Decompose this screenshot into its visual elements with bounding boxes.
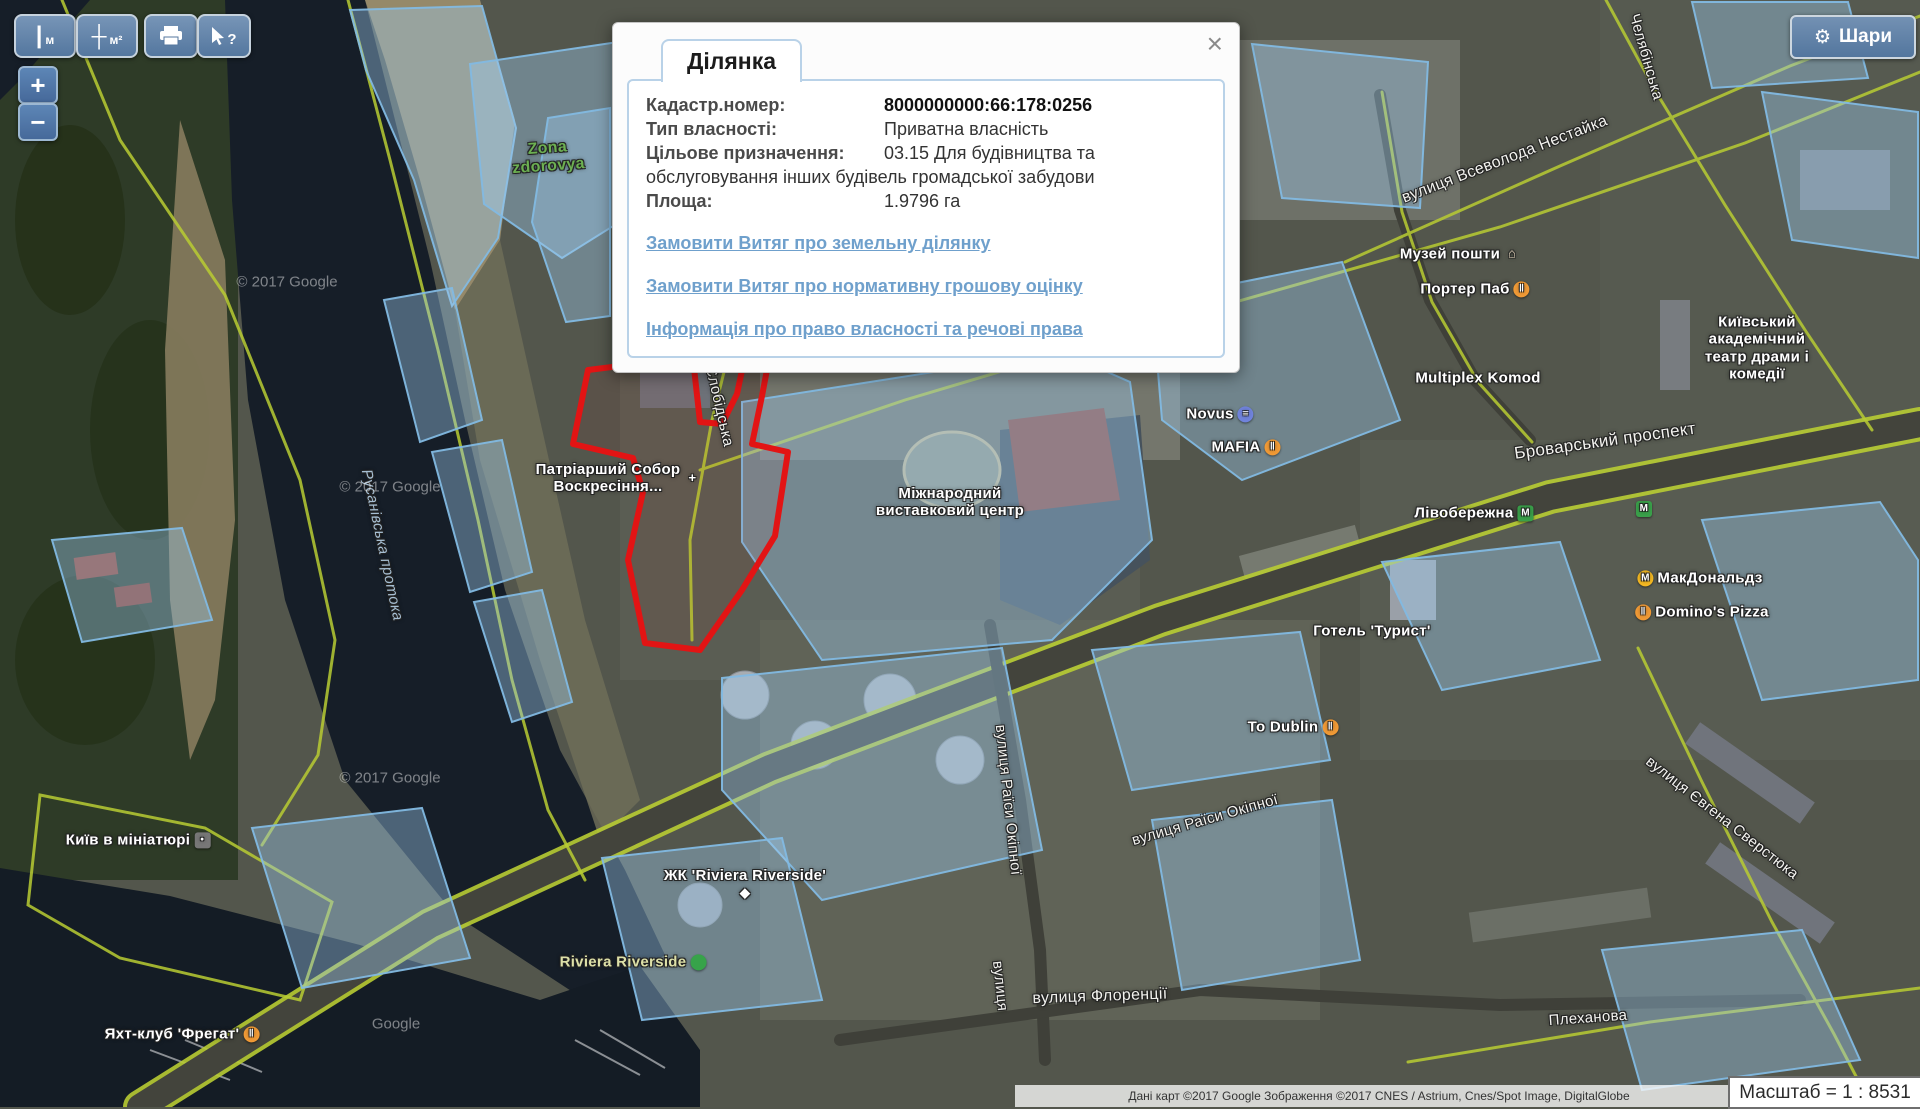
measure-length-button[interactable]: | м bbox=[14, 14, 76, 58]
zoom-out-button[interactable]: − bbox=[18, 103, 58, 141]
layers-button[interactable]: ⚙ Шари bbox=[1790, 15, 1916, 59]
identify-button[interactable]: ? bbox=[197, 14, 251, 58]
measure-area-unit: м² bbox=[110, 33, 123, 47]
link-ownership-info[interactable]: Інформація про право власності та речові… bbox=[646, 319, 1206, 340]
minus-icon: − bbox=[30, 109, 45, 135]
printer-icon bbox=[159, 26, 183, 46]
link-order-extract-parcel[interactable]: Замовити Витяг про земельну ділянку bbox=[646, 233, 1206, 254]
field-area: Площа:1.9796 га bbox=[646, 189, 1206, 213]
close-icon[interactable]: × bbox=[1207, 27, 1223, 61]
gear-icon: ⚙ bbox=[1814, 28, 1831, 47]
identify-question-mark: ? bbox=[227, 31, 236, 48]
link-order-monetary-valuation[interactable]: Замовити Витяг про нормативну грошову оц… bbox=[646, 276, 1206, 297]
field-cadastral-number: Кадастр.номер:8000000000:66:178:0256 bbox=[646, 93, 1206, 117]
field-value: 1.9796 га bbox=[884, 191, 960, 211]
measure-area-button[interactable]: ┼ м² bbox=[76, 14, 138, 58]
popup-tab-row: Ділянка bbox=[613, 23, 1239, 79]
scale-indicator: Масштаб = 1 : 8531 bbox=[1728, 1076, 1920, 1109]
tab-dilyanka[interactable]: Ділянка bbox=[661, 39, 802, 82]
plus-icon: + bbox=[30, 72, 45, 98]
popup-content: Кадастр.номер:8000000000:66:178:0256 Тип… bbox=[627, 79, 1225, 358]
field-value: 8000000000:66:178:0256 bbox=[884, 95, 1092, 115]
zoom-in-button[interactable]: + bbox=[18, 66, 58, 104]
field-label: Площа: bbox=[646, 189, 884, 213]
cursor-icon bbox=[211, 27, 225, 45]
field-ownership-type: Тип власності:Приватна власність bbox=[646, 117, 1206, 141]
field-designated-purpose: Цільове призначення:03.15 Для будівництв… bbox=[646, 141, 1206, 189]
parcel-info-popup: × Ділянка Кадастр.номер:8000000000:66:17… bbox=[612, 22, 1240, 373]
ruler-length-icon: | bbox=[36, 24, 43, 48]
field-value: Приватна власність bbox=[884, 119, 1048, 139]
field-label: Кадастр.номер: bbox=[646, 93, 884, 117]
ruler-area-icon: ┼ bbox=[92, 26, 107, 47]
layers-button-label: Шари bbox=[1839, 26, 1892, 48]
field-label: Цільове призначення: bbox=[646, 141, 884, 165]
map-attribution: Дані карт ©2017 Google Зображення ©2017 … bbox=[1015, 1085, 1743, 1107]
measure-length-unit: м bbox=[45, 33, 54, 47]
field-label: Тип власності: bbox=[646, 117, 884, 141]
print-button[interactable] bbox=[144, 14, 198, 58]
